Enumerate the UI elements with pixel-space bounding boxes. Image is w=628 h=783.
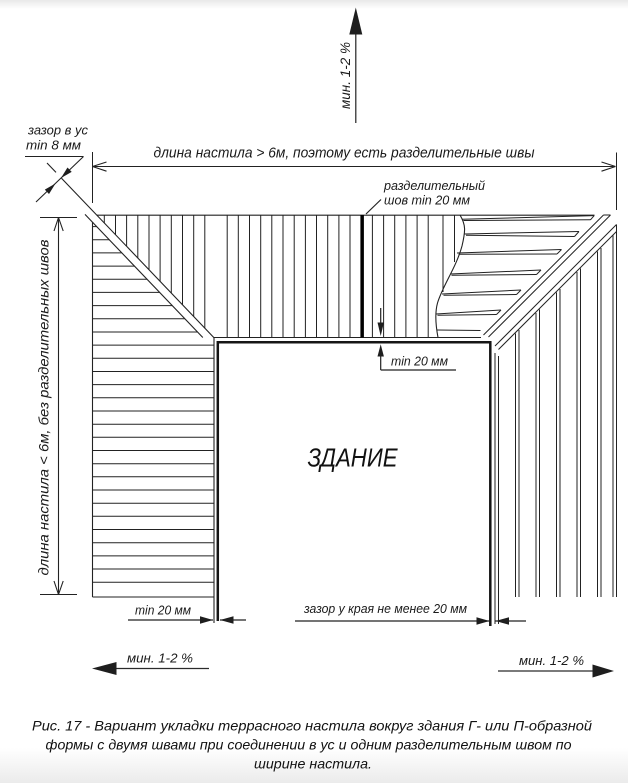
svg-text:зазор у края не менее 20 мм: зазор у края не менее 20 мм — [303, 601, 467, 616]
svg-text:мин. 1-2 %: мин. 1-2 % — [338, 42, 353, 109]
svg-text:длина настила > 6м, поэтому ес: длина настила > 6м, поэтому есть раздели… — [154, 146, 535, 162]
svg-text:min 8 мм: min 8 мм — [26, 138, 81, 153]
svg-text:Рис. 17 - Вариант укладки терр: Рис. 17 - Вариант укладки террасного нас… — [32, 718, 592, 733]
svg-text:формы с двумя швами при соедин: формы с двумя швами при соединении в ус … — [46, 737, 572, 752]
svg-text:ЗДАНИЕ: ЗДАНИЕ — [308, 443, 399, 473]
svg-text:min 20 мм: min 20 мм — [391, 354, 448, 369]
svg-text:мин. 1-2 %: мин. 1-2 % — [127, 651, 193, 666]
svg-text:ширине настила.: ширине настила. — [254, 757, 372, 772]
svg-text:длина настила < 6м, без раздел: длина настила < 6м, без разделительных ш… — [37, 240, 52, 576]
svg-text:разделительный: разделительный — [383, 178, 486, 193]
svg-text:зазор в ус: зазор в ус — [27, 123, 89, 138]
svg-text:min 20 мм: min 20 мм — [135, 603, 191, 618]
svg-text:шов min 20 мм: шов min 20 мм — [384, 193, 470, 208]
svg-text:мин. 1-2 %: мин. 1-2 % — [519, 653, 584, 668]
